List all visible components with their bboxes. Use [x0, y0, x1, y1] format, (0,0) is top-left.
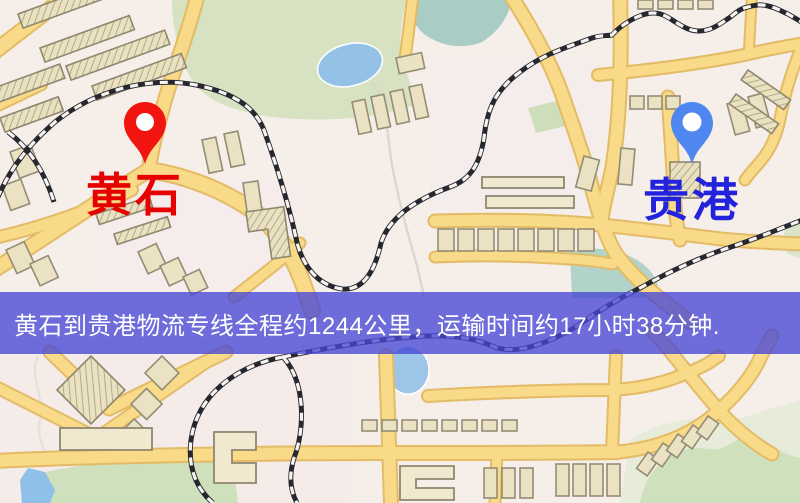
destination-pin[interactable] [668, 100, 716, 166]
origin-pin-icon [121, 100, 169, 166]
destination-pin-icon [668, 100, 716, 166]
destination-city-label: 贵港 [643, 177, 741, 223]
origin-pin[interactable] [121, 100, 169, 166]
map-view: 黄石 贵港 黄石到贵港物流专线全程约1244公里，运输时间约17小时38分钟. [0, 0, 800, 503]
map-background [0, 0, 800, 503]
route-info-text: 黄石到贵港物流专线全程约1244公里，运输时间约17小时38分钟. [0, 306, 720, 341]
origin-city-label: 黄石 [86, 172, 184, 218]
route-info-banner: 黄石到贵港物流专线全程约1244公里，运输时间约17小时38分钟. [0, 292, 800, 354]
